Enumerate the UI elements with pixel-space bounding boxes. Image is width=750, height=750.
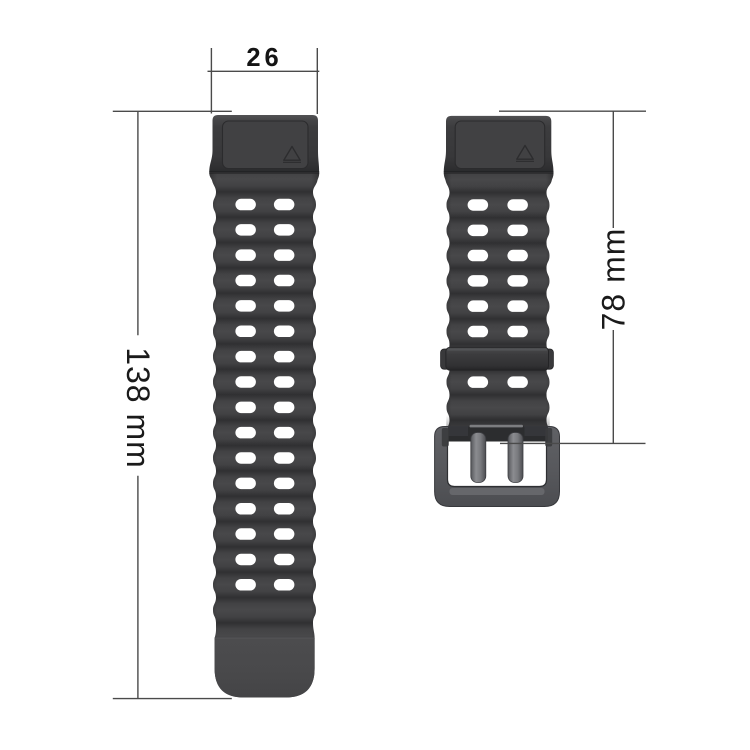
svg-text:26: 26 — [246, 44, 282, 72]
svg-text:78 mm: 78 mm — [595, 228, 631, 331]
svg-text:138 mm: 138 mm — [120, 347, 156, 469]
